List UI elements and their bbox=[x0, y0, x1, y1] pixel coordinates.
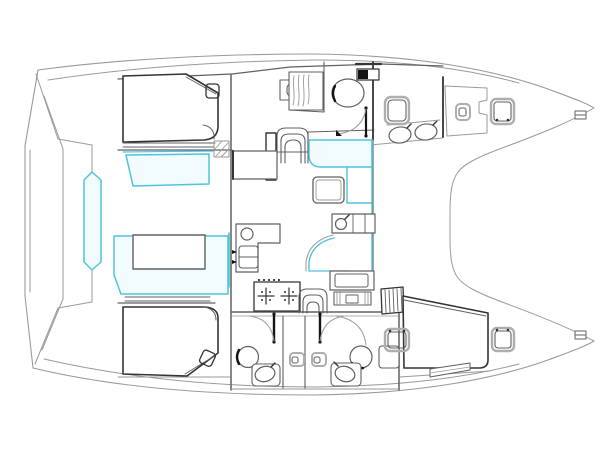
port-berth-cushion-line bbox=[123, 151, 213, 152]
cabin-hatch-port-fwd-inner bbox=[388, 100, 406, 121]
step-hatch-square bbox=[214, 141, 229, 157]
hull-inboard-bow-cutout bbox=[450, 108, 594, 341]
floorplan-svg bbox=[0, 0, 614, 450]
cockpit-table bbox=[133, 235, 205, 269]
salon-table bbox=[313, 177, 344, 203]
bath2-door-swing bbox=[320, 316, 344, 341]
deck-hatch-stb-bow-inner bbox=[495, 331, 511, 348]
salon-sideboard bbox=[233, 151, 277, 179]
bath1-sink-counter bbox=[252, 364, 280, 386]
transom-step-top bbox=[36, 74, 92, 145]
stb-companionway-steps bbox=[299, 289, 327, 313]
stb-berth-step-band bbox=[125, 297, 210, 301]
galley-sink-counter bbox=[332, 214, 375, 233]
cockpit-bench-aft bbox=[84, 172, 101, 270]
galley-curved-edge bbox=[306, 235, 333, 271]
port-berth-step-band bbox=[123, 143, 215, 150]
stb-fwd-berth bbox=[403, 296, 488, 368]
stern-outer-edge bbox=[25, 70, 38, 368]
deck-hatch-small-inner bbox=[459, 108, 466, 116]
stb-aft-berth bbox=[123, 307, 218, 376]
floorplan-page bbox=[0, 0, 614, 450]
cockpit-bench-port bbox=[126, 154, 209, 186]
transom-step-top-inner bbox=[44, 96, 63, 149]
bath2-cabinet bbox=[379, 346, 399, 368]
salon-settee-band bbox=[309, 140, 372, 167]
fwd-cabin-door-swing bbox=[336, 316, 366, 345]
stove-knobs bbox=[258, 279, 280, 281]
port-toilet bbox=[332, 79, 364, 107]
port-companionway-steps bbox=[277, 128, 308, 163]
step-hatch-diagonals bbox=[214, 141, 229, 157]
bow-fitting-stb bbox=[575, 331, 586, 339]
shower-pan-1-drain bbox=[292, 357, 298, 363]
galley-curved-cushion bbox=[309, 238, 334, 271]
transom-step-bottom-inner bbox=[42, 299, 63, 350]
port-bath-fixture-fill bbox=[358, 70, 368, 79]
bath1-door-swing bbox=[250, 316, 274, 341]
deck-hatch-small bbox=[456, 104, 470, 120]
bow-fitting-port bbox=[575, 111, 586, 119]
transom-step-bottom bbox=[35, 302, 92, 364]
stb-hull-stairs bbox=[381, 287, 404, 314]
deck-hatch-port-bow-inner bbox=[494, 102, 511, 121]
port-aft-berth bbox=[123, 74, 218, 142]
shower-pan-2-drain bbox=[314, 357, 320, 363]
